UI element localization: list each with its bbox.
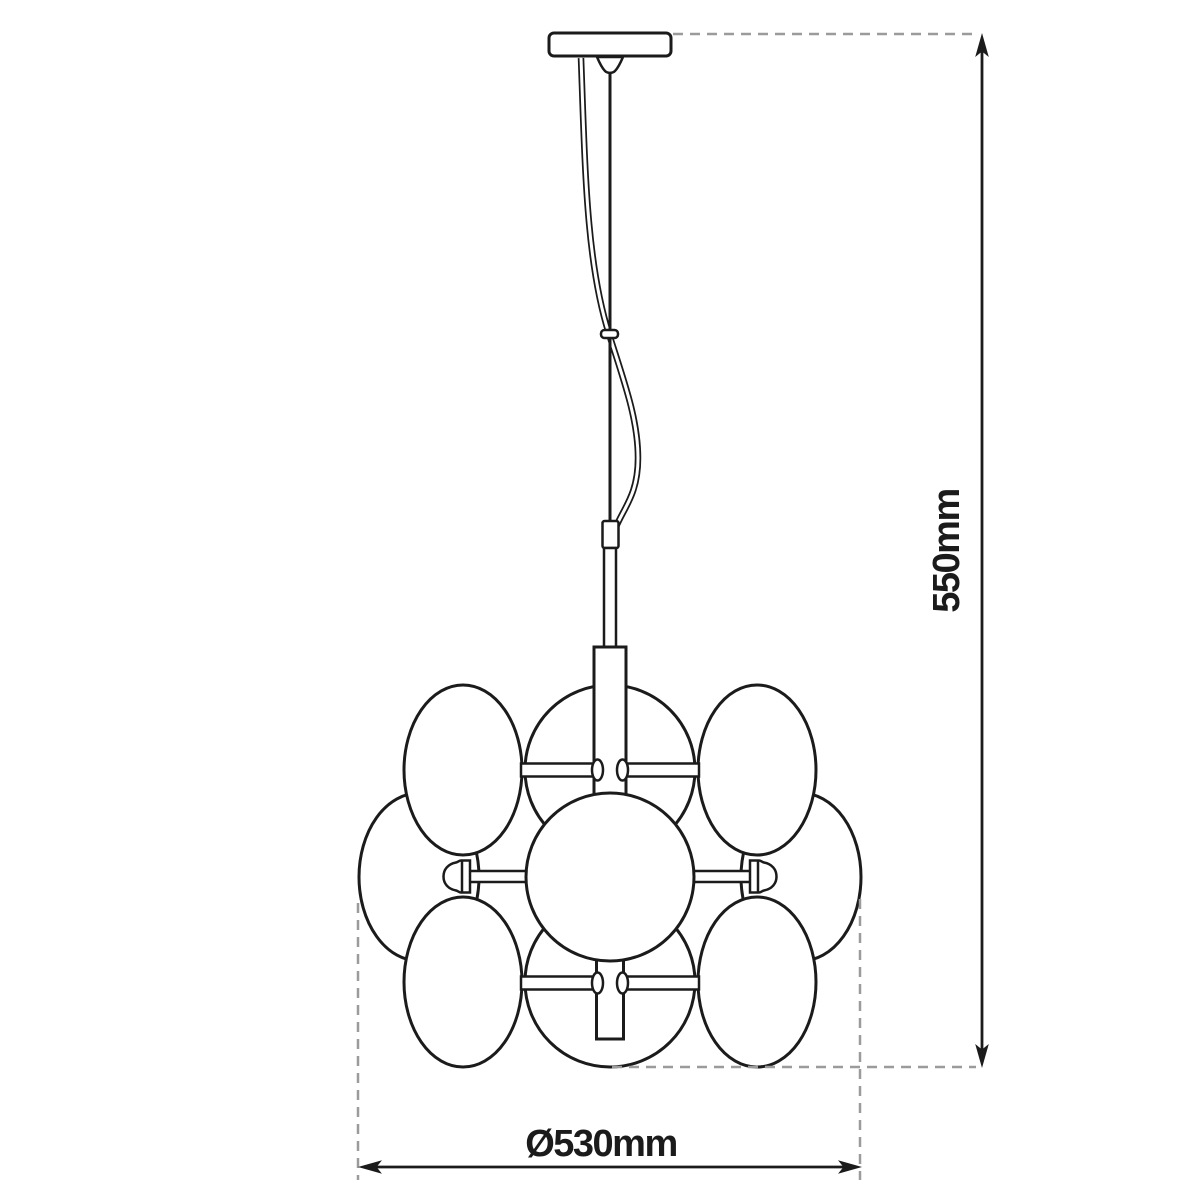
- disc-lower-left: [404, 897, 522, 1067]
- arm-bottom-left: [521, 973, 603, 994]
- hub-bell-right: [750, 861, 777, 893]
- arm-top-right: [617, 760, 699, 781]
- arm-connector: [617, 760, 628, 781]
- height-dimension-label: 550mm: [926, 489, 968, 612]
- pendant-lamp-diagram: 550mm Ø530mm: [0, 0, 1200, 1200]
- ceiling-plate: [549, 33, 671, 56]
- disc-center-front: [526, 793, 694, 961]
- cord-grip: [603, 521, 619, 548]
- arm-connector: [592, 973, 603, 994]
- arm-middle-left: [444, 861, 537, 893]
- disc-upper-left: [404, 685, 522, 855]
- disc-upper-right: [698, 685, 816, 855]
- diameter-dimension-label: Ø530mm: [525, 1123, 677, 1165]
- suspension-assembly: [549, 33, 671, 647]
- strain-relief: [597, 57, 623, 73]
- arm-connector: [617, 973, 628, 994]
- arm-middle-right: [684, 861, 777, 893]
- disc-lower-right: [698, 897, 816, 1067]
- lamp-body: [359, 647, 861, 1067]
- hub-bell-left: [444, 861, 471, 893]
- upper-stem-tube: [604, 548, 616, 647]
- cable-clip: [601, 330, 618, 338]
- arm-top-left: [521, 760, 603, 781]
- arm-bottom-right: [617, 973, 699, 994]
- dimension-drawing-canvas: 550mm Ø530mm: [0, 0, 1200, 1200]
- arm-connector: [592, 760, 603, 781]
